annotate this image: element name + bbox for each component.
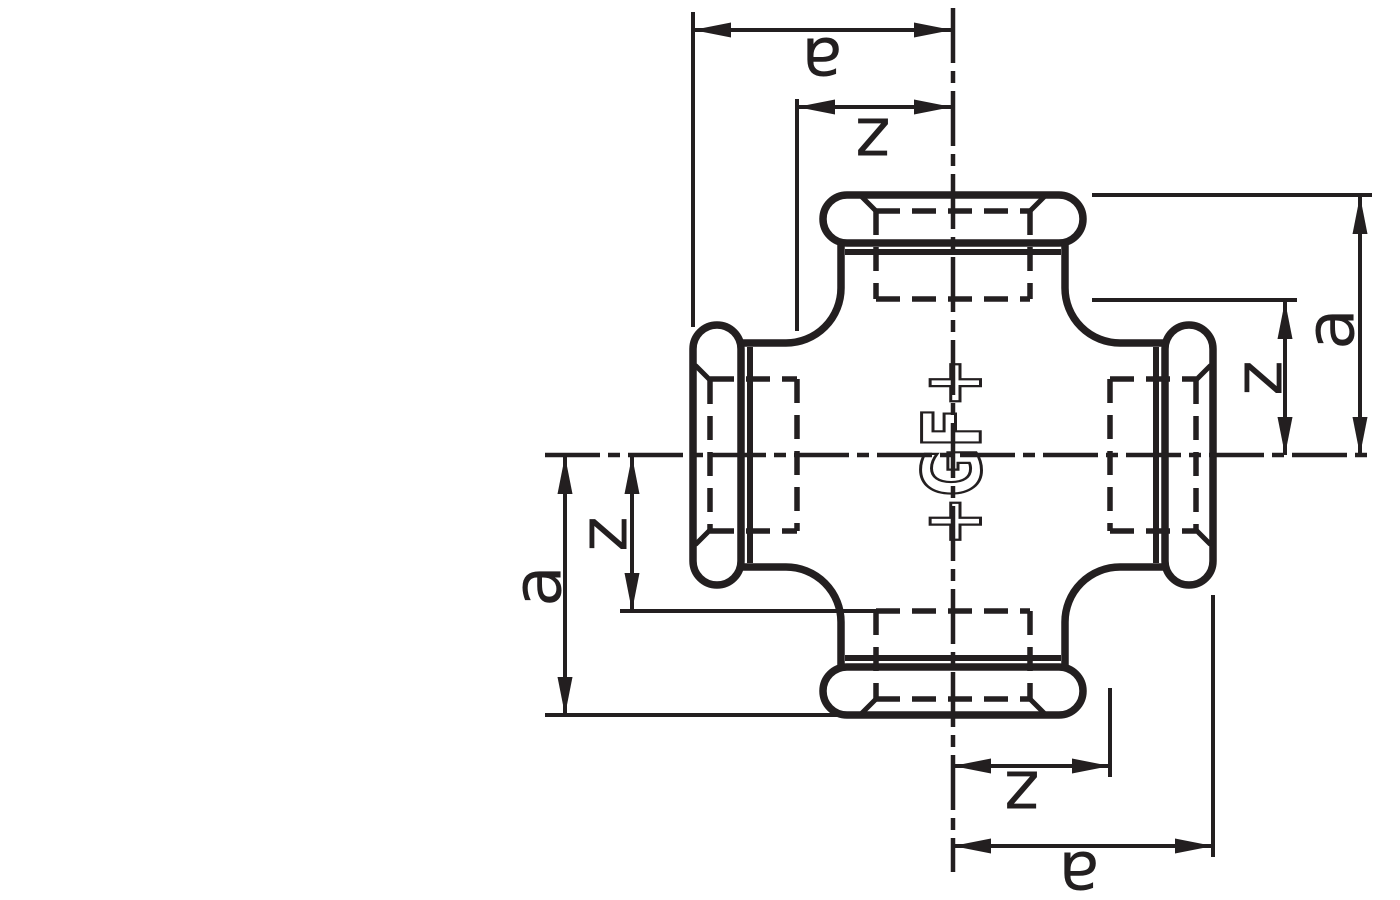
- dim-label-left-z: z: [565, 516, 644, 552]
- arrowhead: [914, 100, 952, 115]
- bottom-right-neck-fillet: [1065, 567, 1163, 665]
- arrowhead: [1353, 417, 1368, 455]
- arrowhead: [797, 100, 835, 115]
- arrowhead: [1175, 839, 1213, 854]
- arrowhead: [558, 456, 573, 494]
- arrowhead: [1278, 301, 1293, 339]
- arrowhead: [1072, 759, 1110, 774]
- arrowhead: [625, 456, 640, 494]
- gf-brand-logo: +GF+: [907, 358, 1000, 546]
- dim-label-left-a: a: [499, 565, 578, 607]
- top-right-neck-fillet: [1065, 245, 1163, 343]
- arrowhead: [953, 839, 991, 854]
- dim-label-bottom-a: a: [1058, 836, 1100, 900]
- dim-label-right-z: z: [1220, 360, 1299, 396]
- arrowhead: [693, 23, 731, 38]
- bottom-left-neck-fillet: [743, 567, 841, 665]
- arrowhead: [953, 759, 991, 774]
- arrowhead: [1278, 417, 1293, 455]
- pipe-cross-fitting-drawing: a z a z a z z a +GF+: [0, 0, 1400, 900]
- arrowhead: [914, 23, 952, 38]
- dim-label-bottom-z: z: [1004, 755, 1040, 834]
- top-left-neck-fillet: [743, 245, 841, 343]
- arrowhead: [625, 573, 640, 611]
- technical-drawing-page: a z a z a z z a +GF+: [0, 0, 1400, 900]
- arrowhead: [558, 677, 573, 715]
- dim-label-top-a: a: [801, 22, 843, 101]
- dim-label-right-a: a: [1292, 308, 1371, 350]
- arrowhead: [1353, 196, 1368, 234]
- dim-label-top-z: z: [855, 102, 891, 181]
